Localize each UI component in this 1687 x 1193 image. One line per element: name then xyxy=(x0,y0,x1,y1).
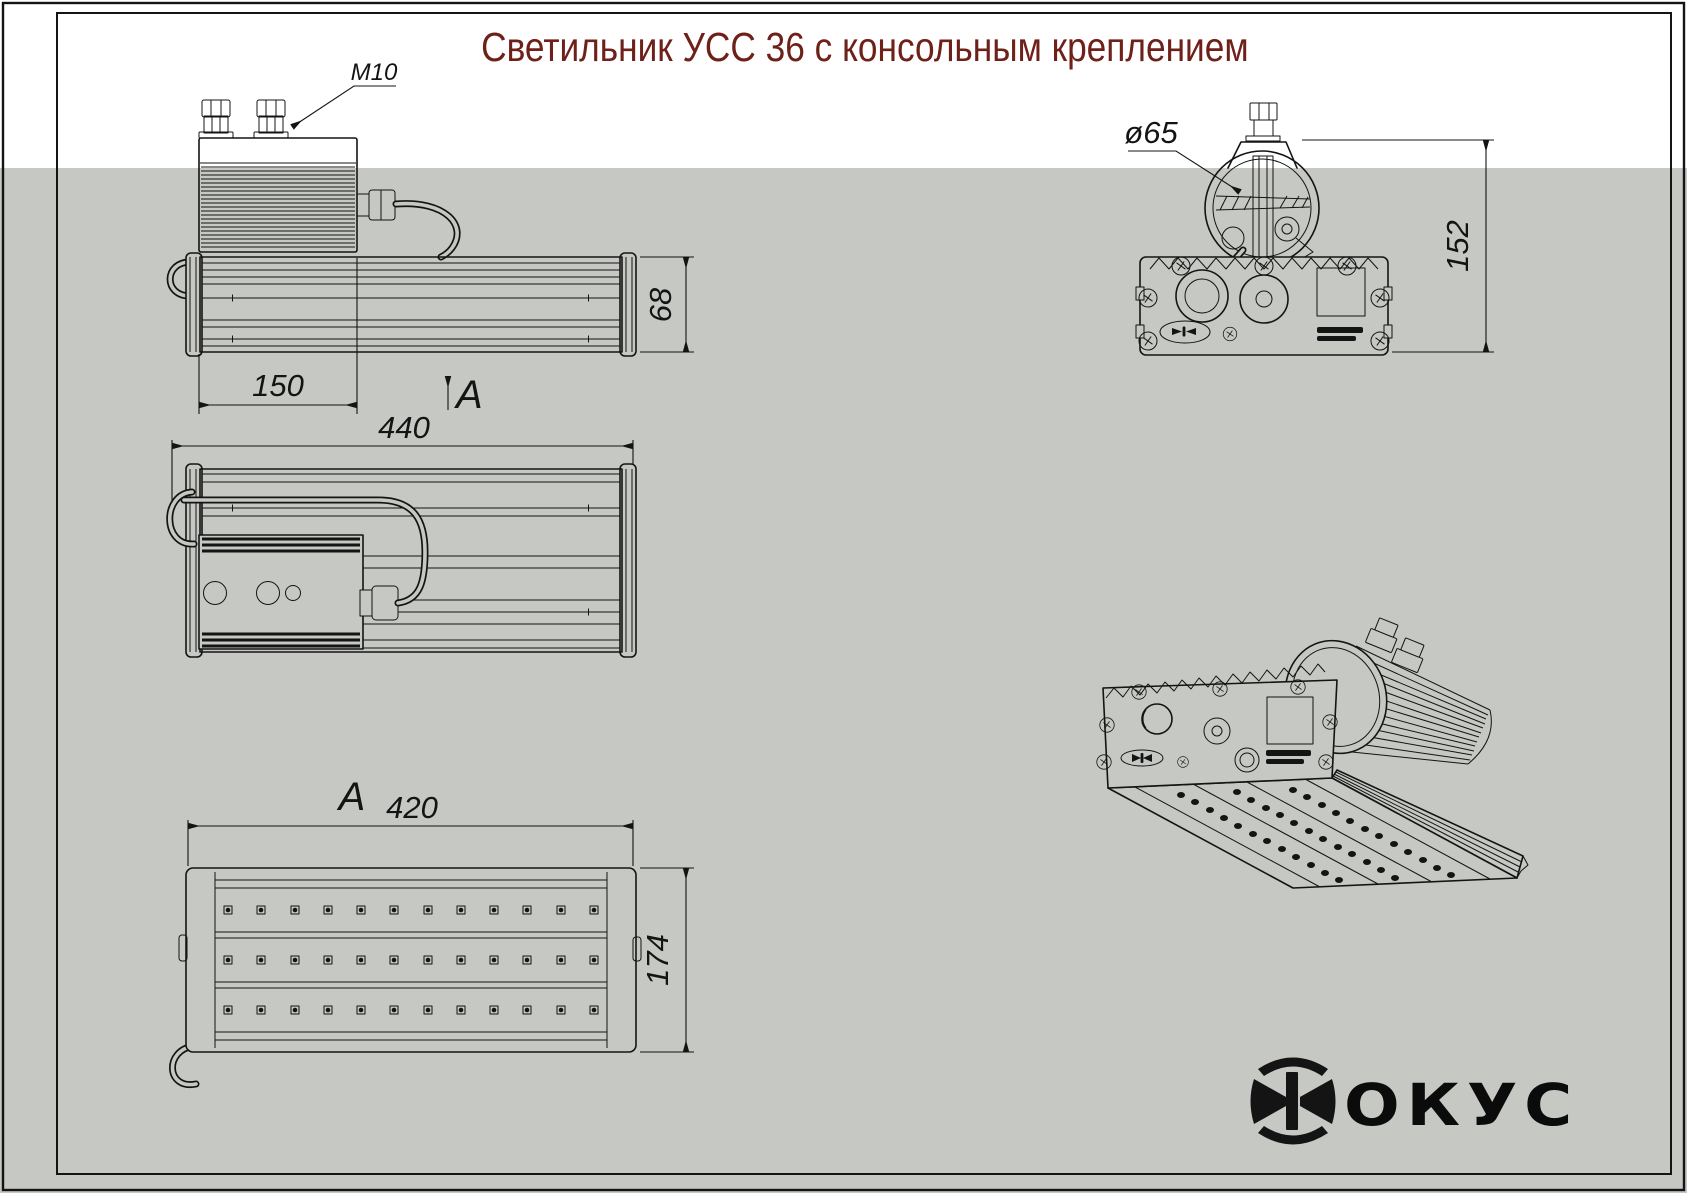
fine-print-bar xyxy=(1266,750,1311,756)
dim-clamp-diameter: ø65 xyxy=(1124,115,1178,150)
logo-text: ОКУС xyxy=(1344,1072,1579,1139)
dim-box-length: 150 xyxy=(252,368,304,403)
view-label-a: А xyxy=(337,775,366,819)
fine-print-bar xyxy=(1317,327,1363,333)
drawing-title: Светильник УСС 36 с консольным крепление… xyxy=(481,24,1109,71)
fine-print-bar xyxy=(1266,759,1304,764)
driver-box-top xyxy=(199,535,363,649)
dim-body-width: 174 xyxy=(640,934,675,986)
thread-label: M10 xyxy=(351,59,398,86)
drawing-sheet: 150 68 А M10 440 xyxy=(0,0,1687,1193)
section-label: А xyxy=(454,373,483,417)
heatsink-fins xyxy=(201,167,355,247)
dim-mount-height: 152 xyxy=(1440,220,1475,272)
dim-overall-length: 440 xyxy=(378,410,430,445)
led-face xyxy=(172,868,641,1085)
cable-gland-top xyxy=(360,586,398,620)
fine-print-bar xyxy=(1317,336,1356,341)
dim-body-height: 68 xyxy=(643,287,678,322)
end-plate xyxy=(1136,250,1392,355)
drawing-canvas: 150 68 А M10 440 xyxy=(0,0,1687,1193)
dim-face-length: 420 xyxy=(386,790,438,825)
